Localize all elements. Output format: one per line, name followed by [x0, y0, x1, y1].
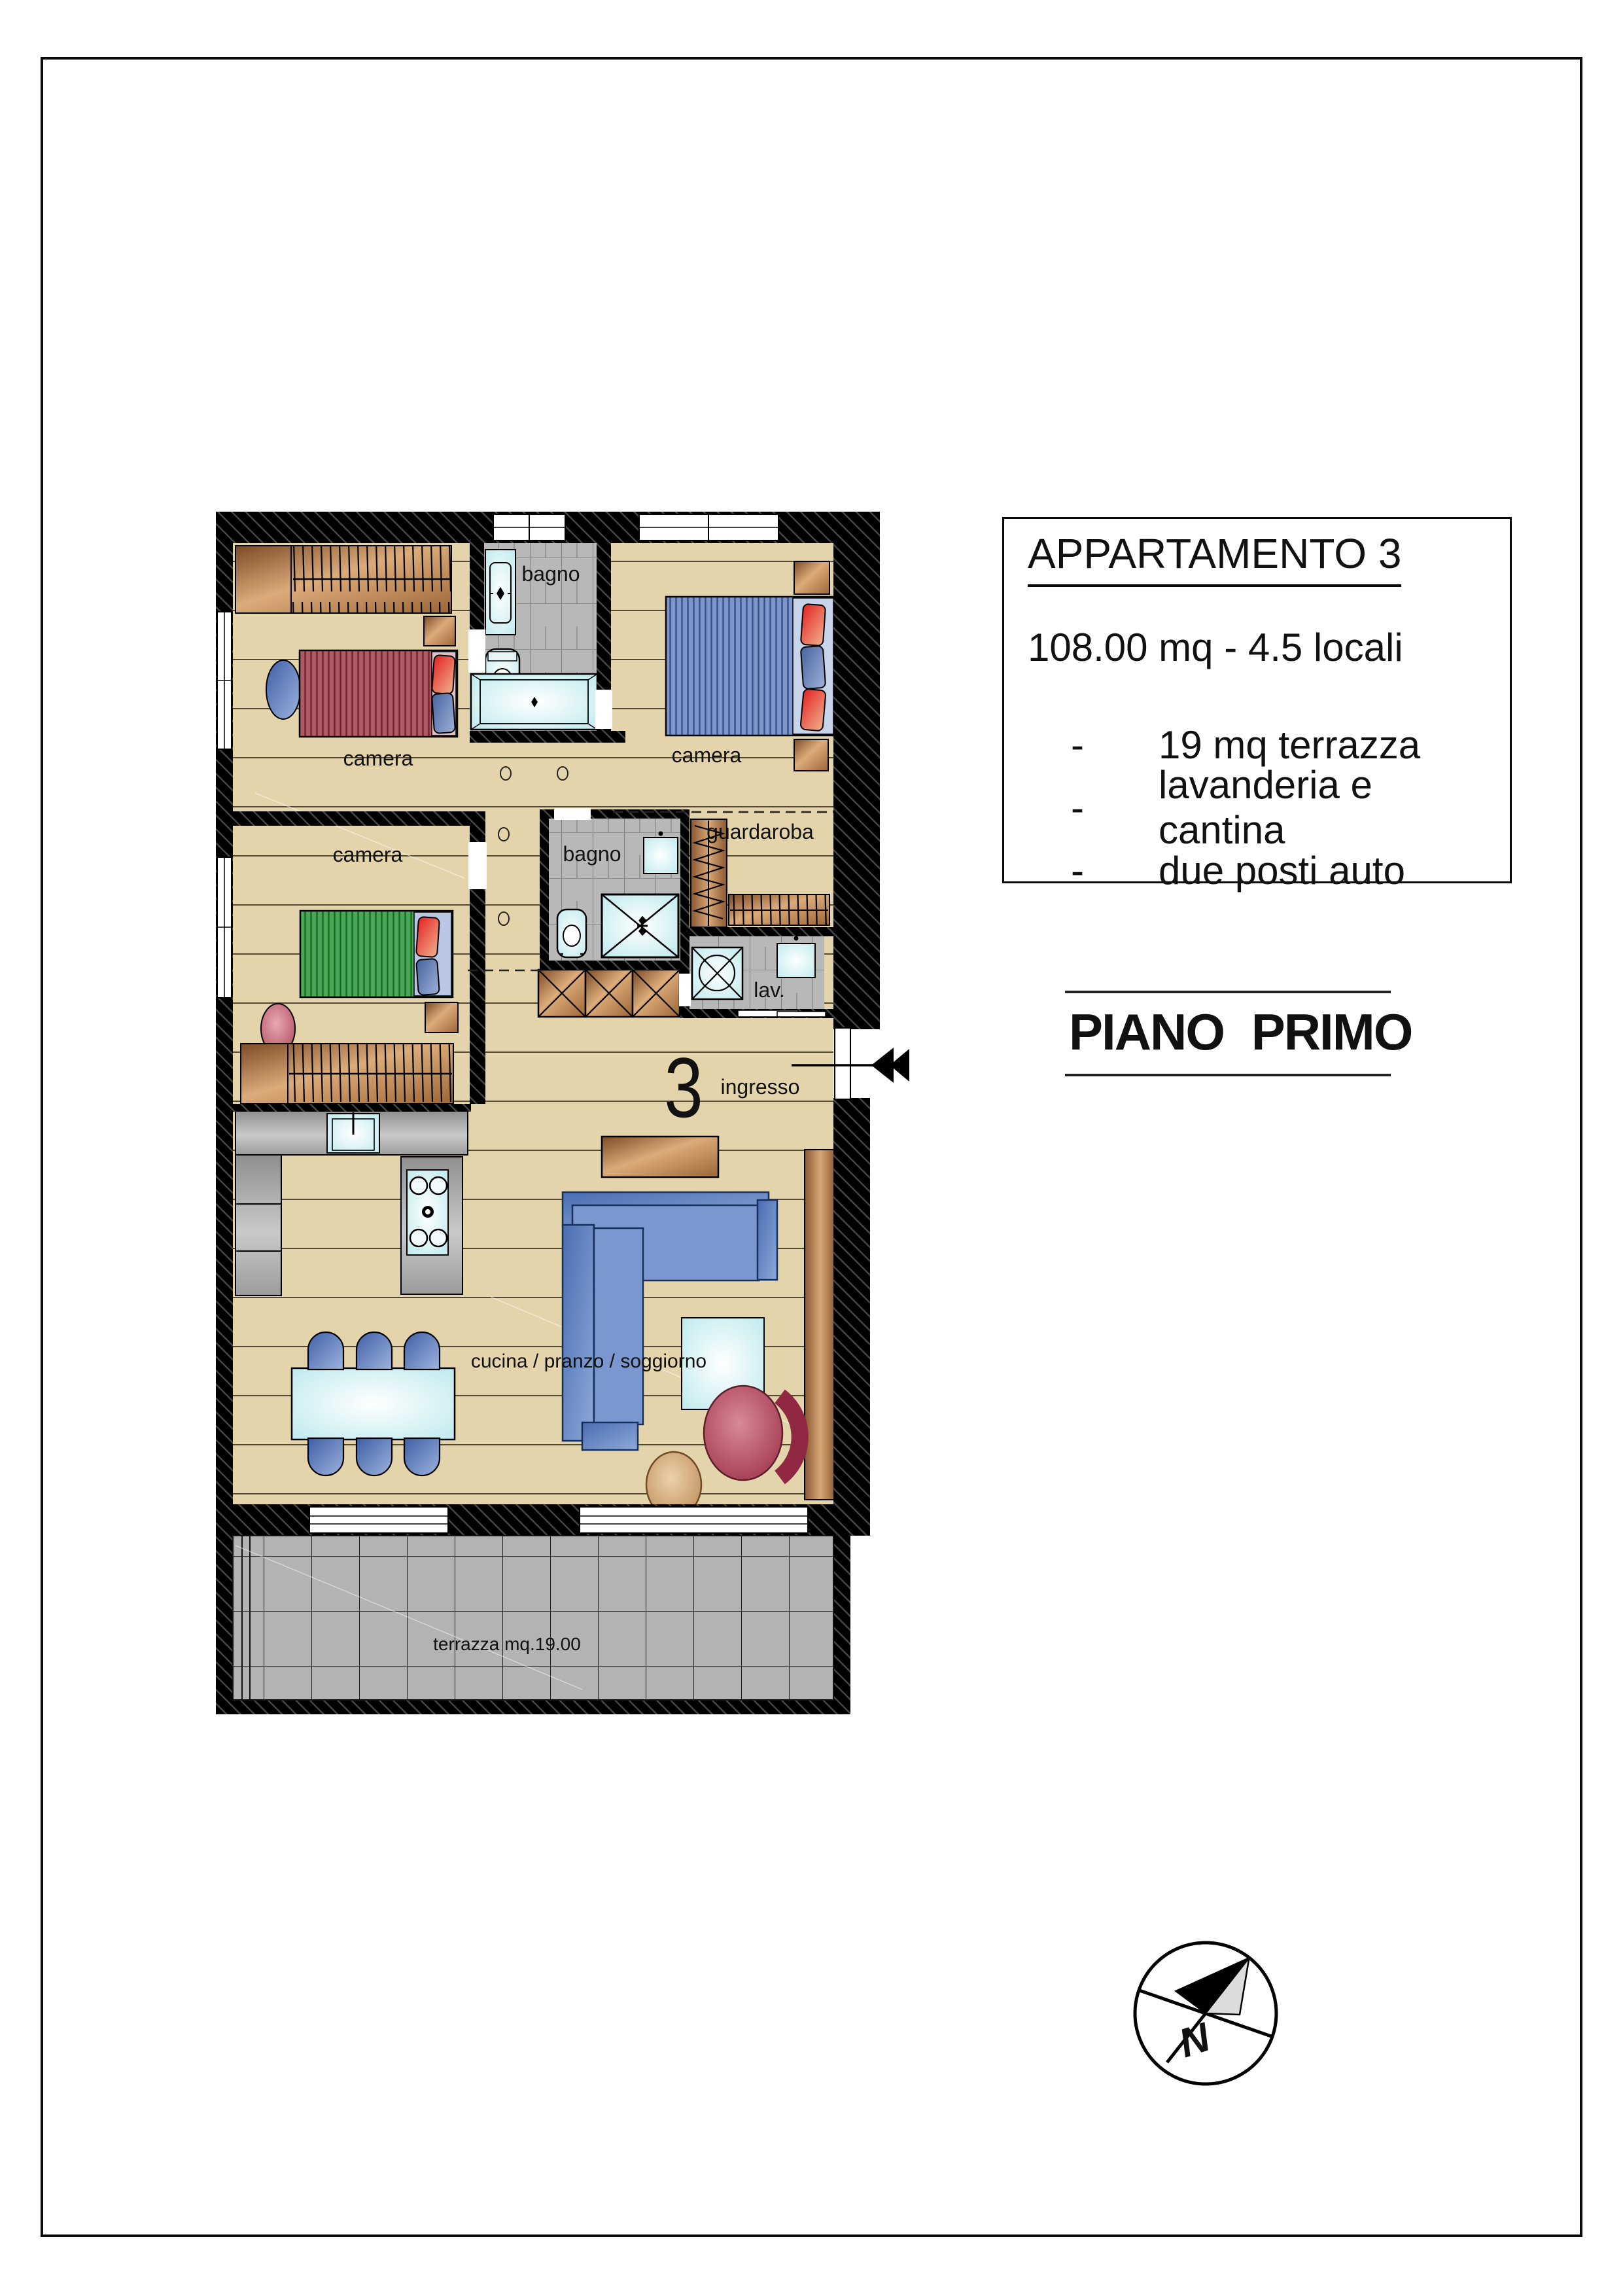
armchair	[704, 1386, 782, 1480]
pillow	[800, 689, 826, 732]
nightstand	[424, 616, 455, 646]
sink	[644, 838, 678, 874]
feature-laundry-cellar: lavanderia e cantina	[1159, 762, 1510, 853]
label-guardaroba: guardaroba	[707, 820, 814, 843]
apartment-area: 108.00 mq - 4.5 locali	[1028, 625, 1510, 670]
window-bottom-1	[309, 1507, 448, 1533]
apartment-title: APPARTAMENTO 3	[1028, 529, 1401, 587]
sofa-armrest	[758, 1200, 777, 1280]
sofa-end-cushion	[582, 1422, 638, 1450]
pillow	[416, 959, 440, 995]
nightstand	[425, 1002, 458, 1033]
unit-number: 3	[664, 1040, 703, 1135]
page: { "info_box": { "title": "APPARTAMENTO 3…	[0, 0, 1623, 2296]
counter-left	[236, 1155, 281, 1296]
pillow	[432, 693, 455, 733]
north-label: N	[1174, 2014, 1216, 2066]
dining-table	[292, 1368, 455, 1439]
window-bottom-2	[580, 1507, 808, 1533]
pillow	[801, 646, 826, 689]
sofa-chaise-seat	[594, 1228, 643, 1424]
label-living: cucina / pranzo / soggiorno	[471, 1351, 707, 1372]
feature-terrace: 19 mq terrazza	[1159, 722, 1420, 768]
label-bagno-mid: bagno	[563, 842, 621, 866]
pillow	[801, 604, 826, 646]
bullet-dash: -	[1071, 785, 1113, 830]
corridor-dressers	[538, 970, 680, 1017]
sink	[777, 944, 815, 978]
pillow	[432, 655, 455, 694]
label-terrace: terrazza mq.19.00	[433, 1634, 581, 1654]
terrace	[233, 1536, 833, 1700]
floor-plan-svg: camera camera camera bagno bagno guardar…	[216, 512, 909, 1714]
label-ingresso: ingresso	[721, 1075, 800, 1099]
tall-cabinet	[805, 1150, 836, 1500]
sideboard	[602, 1137, 718, 1177]
label-camera-top-right: camera	[672, 743, 742, 767]
entrance-door-leaf	[835, 1028, 850, 1099]
label-camera-top-left: camera	[343, 747, 413, 770]
window-top-bath	[493, 514, 565, 540]
feature-parking: due posti auto	[1159, 848, 1405, 893]
window-top-bedroom	[639, 514, 778, 540]
floor-title: PIANO PRIMO	[1065, 991, 1391, 1076]
sofa-chaise-back	[563, 1225, 594, 1441]
window-left-2	[217, 857, 232, 998]
window-left-1	[217, 612, 232, 749]
north-compass-icon: N	[1128, 1934, 1285, 2091]
apartment-info-box: APPARTAMENTO 3 108.00 mq - 4.5 locali - …	[1002, 517, 1512, 883]
label-bagno-top: bagno	[522, 562, 580, 586]
pillow	[416, 917, 440, 957]
bullet-dash: -	[1071, 722, 1113, 768]
nightstand	[794, 561, 829, 594]
label-lav: lav.	[754, 978, 784, 1002]
label-camera-mid-left: camera	[333, 843, 403, 866]
floor-plan: camera camera camera bagno bagno guardar…	[216, 512, 909, 1714]
feature-row: - lavanderia e cantina	[1028, 776, 1510, 839]
nightstand	[794, 739, 828, 771]
apartment-features: - 19 mq terrazza - lavanderia e cantina …	[1028, 713, 1510, 902]
bullet-dash: -	[1071, 848, 1113, 893]
chair	[266, 660, 300, 719]
